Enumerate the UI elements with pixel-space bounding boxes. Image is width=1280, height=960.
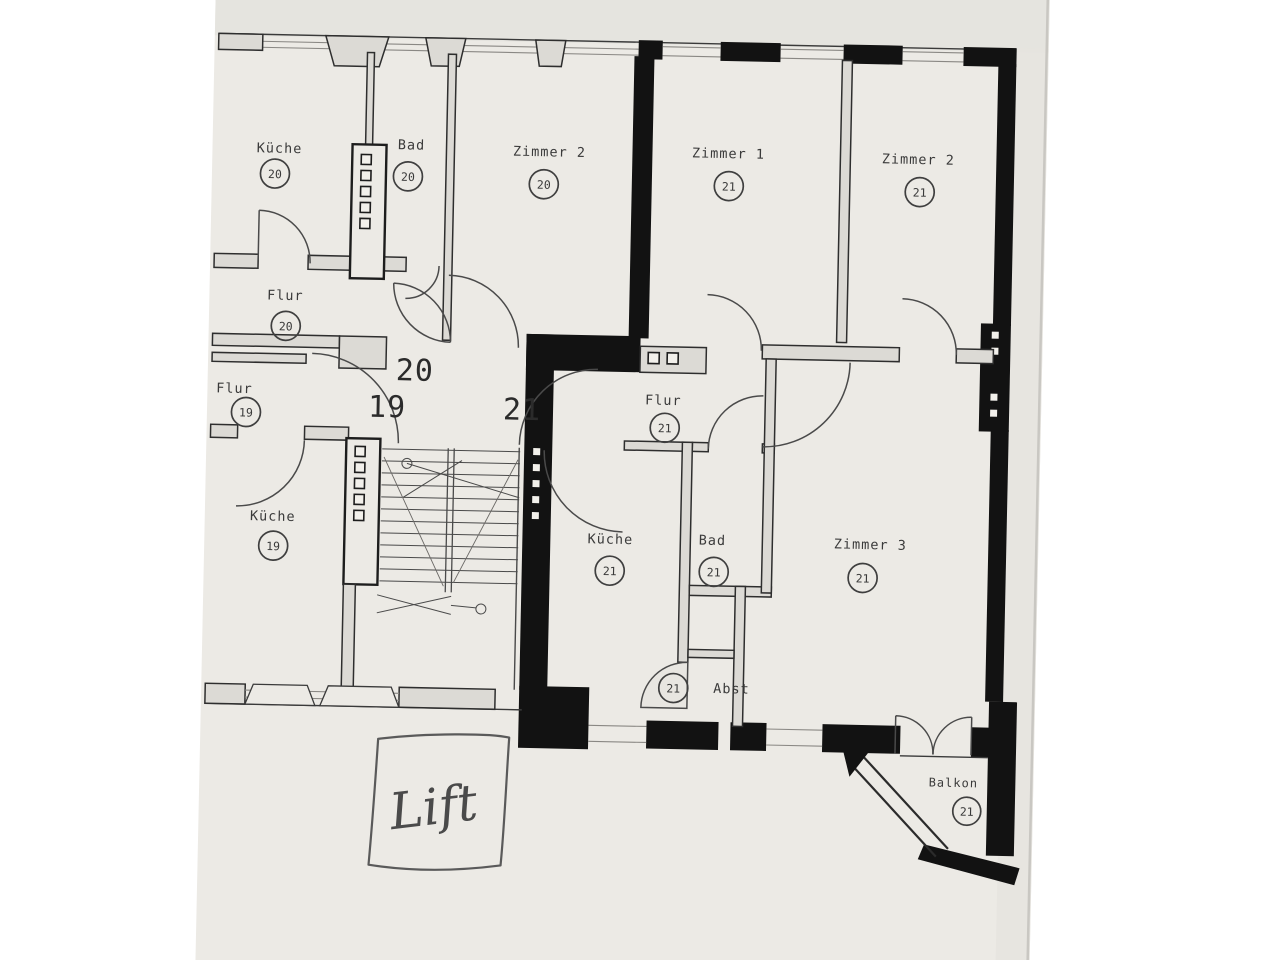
kueche-bad-divider (366, 52, 375, 145)
svg-text:Flur: Flur (267, 287, 304, 304)
flue (360, 202, 370, 212)
bottom-wall-segment (399, 687, 495, 709)
kueche19-east-wall (341, 584, 355, 688)
zimmer-south-wall (762, 345, 899, 362)
svg-text:Bad: Bad (699, 533, 727, 550)
flue (361, 170, 371, 180)
flur21-south-wall (692, 442, 708, 451)
landing-number-20: 20 (395, 353, 434, 389)
unit21-sw-corner (518, 686, 589, 749)
flue (354, 510, 364, 520)
top-wall-segment (219, 33, 263, 50)
svg-text:19: 19 (266, 539, 280, 553)
svg-text:Abst: Abst (713, 681, 750, 698)
flur19-south-wall (304, 426, 348, 440)
top-wall-black-segment (720, 42, 780, 62)
zimmer-south-wall (956, 349, 993, 364)
svg-text:Zimmer 2: Zimmer 2 (513, 144, 586, 162)
svg-text:21: 21 (722, 179, 736, 193)
balcony-east-wall (986, 702, 1017, 857)
flue (355, 446, 365, 456)
flue (667, 353, 678, 364)
svg-text:Flur: Flur (645, 392, 682, 409)
svg-text:Zimmer 2: Zimmer 2 (882, 151, 955, 169)
flur20-north-wall (308, 255, 352, 270)
svg-text:21: 21 (658, 421, 672, 435)
bottom-wall-segment (205, 683, 245, 704)
svg-text:21: 21 (666, 681, 680, 695)
flue (355, 462, 365, 472)
shaft-vent (532, 512, 539, 519)
shaft-vent (533, 448, 540, 455)
svg-text:21: 21 (960, 805, 974, 819)
svg-text:21: 21 (707, 565, 721, 579)
scanned-page: Lift Küche 20 Bad 20 Zimmer 2 20 Flur (195, 0, 1050, 960)
flue (648, 352, 659, 363)
svg-text:21: 21 (856, 571, 870, 585)
flue (361, 186, 371, 196)
window-reveal (320, 686, 399, 708)
svg-text:Küche: Küche (257, 140, 303, 157)
shaft-vent (532, 480, 539, 487)
landing-number-19: 19 (368, 390, 407, 426)
shaft-vent (532, 496, 539, 503)
flur20-north-wall (384, 257, 406, 271)
svg-text:21: 21 (603, 564, 617, 578)
floor-plan-scan: Lift Küche 20 Bad 20 Zimmer 2 20 Flur (0, 0, 1280, 960)
shaft-vent (990, 394, 997, 401)
svg-text:20: 20 (268, 167, 282, 181)
top-wall-mullion (535, 40, 566, 67)
lift-label: Lift (385, 773, 481, 841)
door-leaf (258, 210, 259, 260)
flue (354, 494, 364, 504)
top-wall-pier (325, 36, 389, 67)
landing-door-pier (339, 336, 387, 369)
flur21-south-wall (624, 441, 684, 451)
flur20-north-wall (214, 253, 258, 268)
flue (354, 478, 364, 488)
svg-text:Balkon: Balkon (929, 775, 979, 790)
bottom-wall-black-segment (646, 720, 719, 750)
bottom-wall-black-segment (822, 724, 901, 754)
svg-text:Küche: Küche (587, 531, 633, 548)
flue (360, 218, 370, 228)
flur19-north-wall (212, 352, 306, 363)
svg-text:19: 19 (239, 405, 253, 419)
svg-text:Küche: Küche (250, 508, 296, 525)
flue (361, 154, 371, 164)
svg-text:Bad: Bad (398, 137, 426, 154)
bad21-south-wall (689, 585, 771, 597)
svg-text:20: 20 (279, 319, 293, 333)
landing-number-21: 21 (503, 392, 542, 428)
shaft-vent (990, 410, 997, 417)
shaft-vent (533, 464, 540, 471)
svg-text:Zimmer 3: Zimmer 3 (834, 536, 907, 554)
top-wall-pier (425, 38, 466, 67)
bottom-wall-black-segment (971, 727, 998, 758)
flur19-south-wall (210, 424, 237, 438)
svg-text:20: 20 (537, 178, 551, 192)
svg-text:21: 21 (913, 185, 927, 199)
abst-north-wall (688, 649, 734, 658)
window-reveal (245, 684, 315, 705)
paper-sheet (195, 0, 1050, 960)
shaft-vent (992, 332, 999, 339)
svg-text:20: 20 (401, 170, 415, 184)
svg-text:Flur: Flur (216, 380, 253, 397)
svg-text:Zimmer 1: Zimmer 1 (692, 145, 765, 163)
